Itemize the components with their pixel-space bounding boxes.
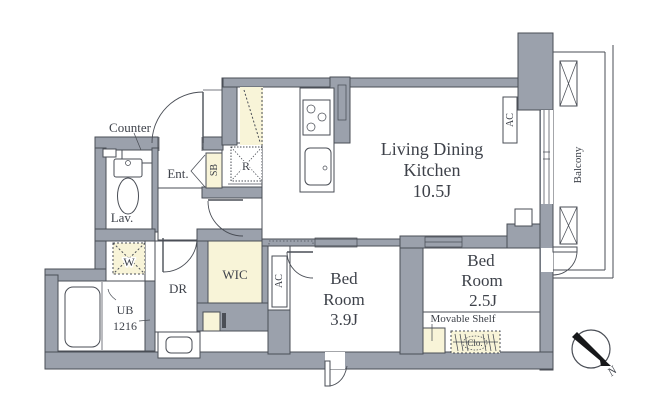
balcony-label: Balcony [572,146,584,183]
bedroom1-label-line1: Bed [330,269,358,288]
ldk-floor [237,87,540,239]
wall-niche [103,149,116,157]
dressing-room-label: DR [169,281,187,296]
bedroom1-size-label: 3.9J [330,310,358,329]
counter-label: Counter [109,120,152,135]
pipe-space-bar [222,313,226,328]
entrance-door [152,92,203,143]
compass [572,330,611,368]
utility-box [158,332,200,358]
unit-bath-label-line1: UB [117,303,134,317]
refrigerator-label: R [242,159,250,173]
duct-box [515,209,532,226]
bedroom2-label-line1: Bed [467,251,495,270]
unit-bath-label-line2: 1216 [113,319,137,333]
bedroom2-balcony-door [553,247,577,275]
wic-label: WIC [222,267,247,282]
entrance-opening [159,137,202,151]
entrance-label: Ent. [167,166,188,181]
ac-outdoor-unit-2 [560,207,577,244]
movable-shelf-box [423,328,445,353]
bedroom2-size-label: 2.5J [469,291,497,310]
floor-plan: Counter Ent. Lav. DR WIC UB 1216 Living … [0,0,659,407]
sink-icon [305,148,331,185]
bedroom2-balcony-opening [541,248,553,272]
fridge-upper-cabinet [240,87,263,145]
closet-label: Clo. [467,338,482,348]
bathtub [65,282,102,350]
movable-shelf-label: Movable Shelf [430,313,495,325]
stove-icon [303,100,330,135]
ldk-label-line2: Kitchen [404,160,461,180]
kitchen-counter [300,88,334,192]
floor-plan-page: Counter Ent. Lav. DR WIC UB 1216 Living … [0,0,659,407]
ldk-ac-label: AC [505,113,516,127]
balcony-sliding-door [541,110,553,204]
bedroom2-label-line2: Room [461,271,503,290]
pipe-space [203,312,220,331]
bedroom-ac-label: AC [274,274,285,288]
ldk-size-label: 10.5J [413,181,452,201]
ac-outdoor-unit-1 [560,61,577,106]
bedroom1-label-line2: Room [323,290,365,309]
washing-machine-label: W [123,255,135,269]
ldk-label-line1: Living Dining [381,139,484,159]
lavatory-label: Lav. [111,210,134,225]
shoe-box-label: SB [209,164,220,177]
